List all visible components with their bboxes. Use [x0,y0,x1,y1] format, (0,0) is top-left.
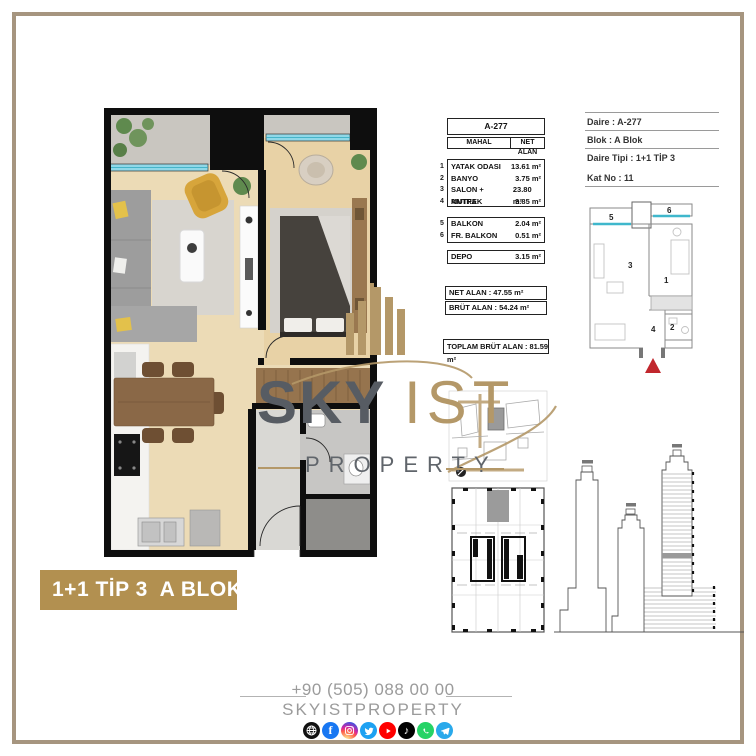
balcony-french [264,112,352,134]
key-unit-plan: 5 6 3 1 4 2 [587,196,701,384]
main-floor-plan [104,108,377,557]
website-icon[interactable] [303,722,320,739]
balconies-box: 5 BALKON 2.04 m² 6 FR. BALKON 0.51 m² [447,217,545,243]
tower-outline [612,515,644,632]
key-label-2: 2 [670,323,675,332]
table-row: 2 BANYO 3.75 m² [448,173,544,185]
floor-plan-unit-highlight [487,490,509,522]
logo-text-sky: SKY [257,368,386,437]
divider [585,186,719,187]
unit-type-banner: 1+1 TİP 3 A BLOK [40,570,237,610]
col-header-netalan: NET ALAN [510,137,545,149]
whatsapp-icon[interactable] [417,722,434,739]
phone-number: +90 (505) 088 00 00 [223,680,523,700]
key-label-5: 5 [609,213,614,222]
unit-info: Daire : A-277 Blok : A Blok Daire Tipi :… [585,112,719,187]
logo-text-ist: IST [404,368,515,437]
net-alan-total: NET ALAN : 47.55 m² [445,286,547,300]
facebook-icon[interactable]: f [322,722,339,739]
info-daire-tipi: Daire Tipi : 1+1 TİP 3 [585,149,719,166]
brand-name: SKYISTPROPERTY [223,700,523,720]
tower-outline [560,472,606,632]
entrance-marker-triangle [645,358,661,373]
unit-number: A-277 [447,118,545,135]
key-plan-furniture [594,228,689,340]
social-icons: f ♪ [303,722,453,739]
typical-floor-plan [449,485,547,635]
table-row: 4 ANTRE 3.85 m² [448,196,544,208]
table-row: 6 FR. BALKON 0.51 m² [448,230,544,242]
coffee-table [180,230,204,282]
key-label-3: 3 [628,261,633,270]
logo-underline-right [446,468,504,470]
storage-room [306,499,370,550]
balcony-left [108,112,210,165]
plant [351,154,367,170]
info-kat-no: Kat No : 11 [585,166,719,186]
rooms-box: 1 YATAK ODASI 13.61 m² 2 BANYO 3.75 m² 3… [447,159,545,207]
key-label-6: 6 [667,206,672,215]
logo-underline-left [258,467,300,469]
brut-alan-total: BRÜT ALAN : 54.24 m² [445,301,547,315]
telegram-icon[interactable] [436,722,453,739]
table-row: 5 BALKON 2.04 m² [448,218,544,230]
info-blok: Blok : A Blok [585,131,719,148]
table-row: DEPO 3.15 m² [448,251,544,263]
col-header-mahal: MAHAL [447,137,511,149]
info-daire: Daire : A-277 [585,113,719,130]
logo-building-icon [338,283,422,355]
flyer-canvas: SKY IST PROPERTY 1+1 TİP 3 A BLOK A-277 … [0,0,756,756]
building-elevations [552,436,748,642]
table-row: 1 YATAK ODASI 13.61 m² [448,161,544,173]
cooktop [114,434,140,476]
instagram-icon[interactable] [341,722,358,739]
elevation-floor-highlight [662,553,692,559]
key-label-1: 1 [664,276,669,285]
depo-box: DEPO 3.15 m² [447,250,545,264]
key-label-4: 4 [651,325,656,334]
logo-text-property: PROPERTY [305,452,498,478]
twitter-icon[interactable] [360,722,377,739]
table-row: 3 SALON + MUTFAK 23.80 m² [448,184,544,196]
youtube-icon[interactable] [379,722,396,739]
tiktok-icon[interactable]: ♪ [398,722,415,739]
